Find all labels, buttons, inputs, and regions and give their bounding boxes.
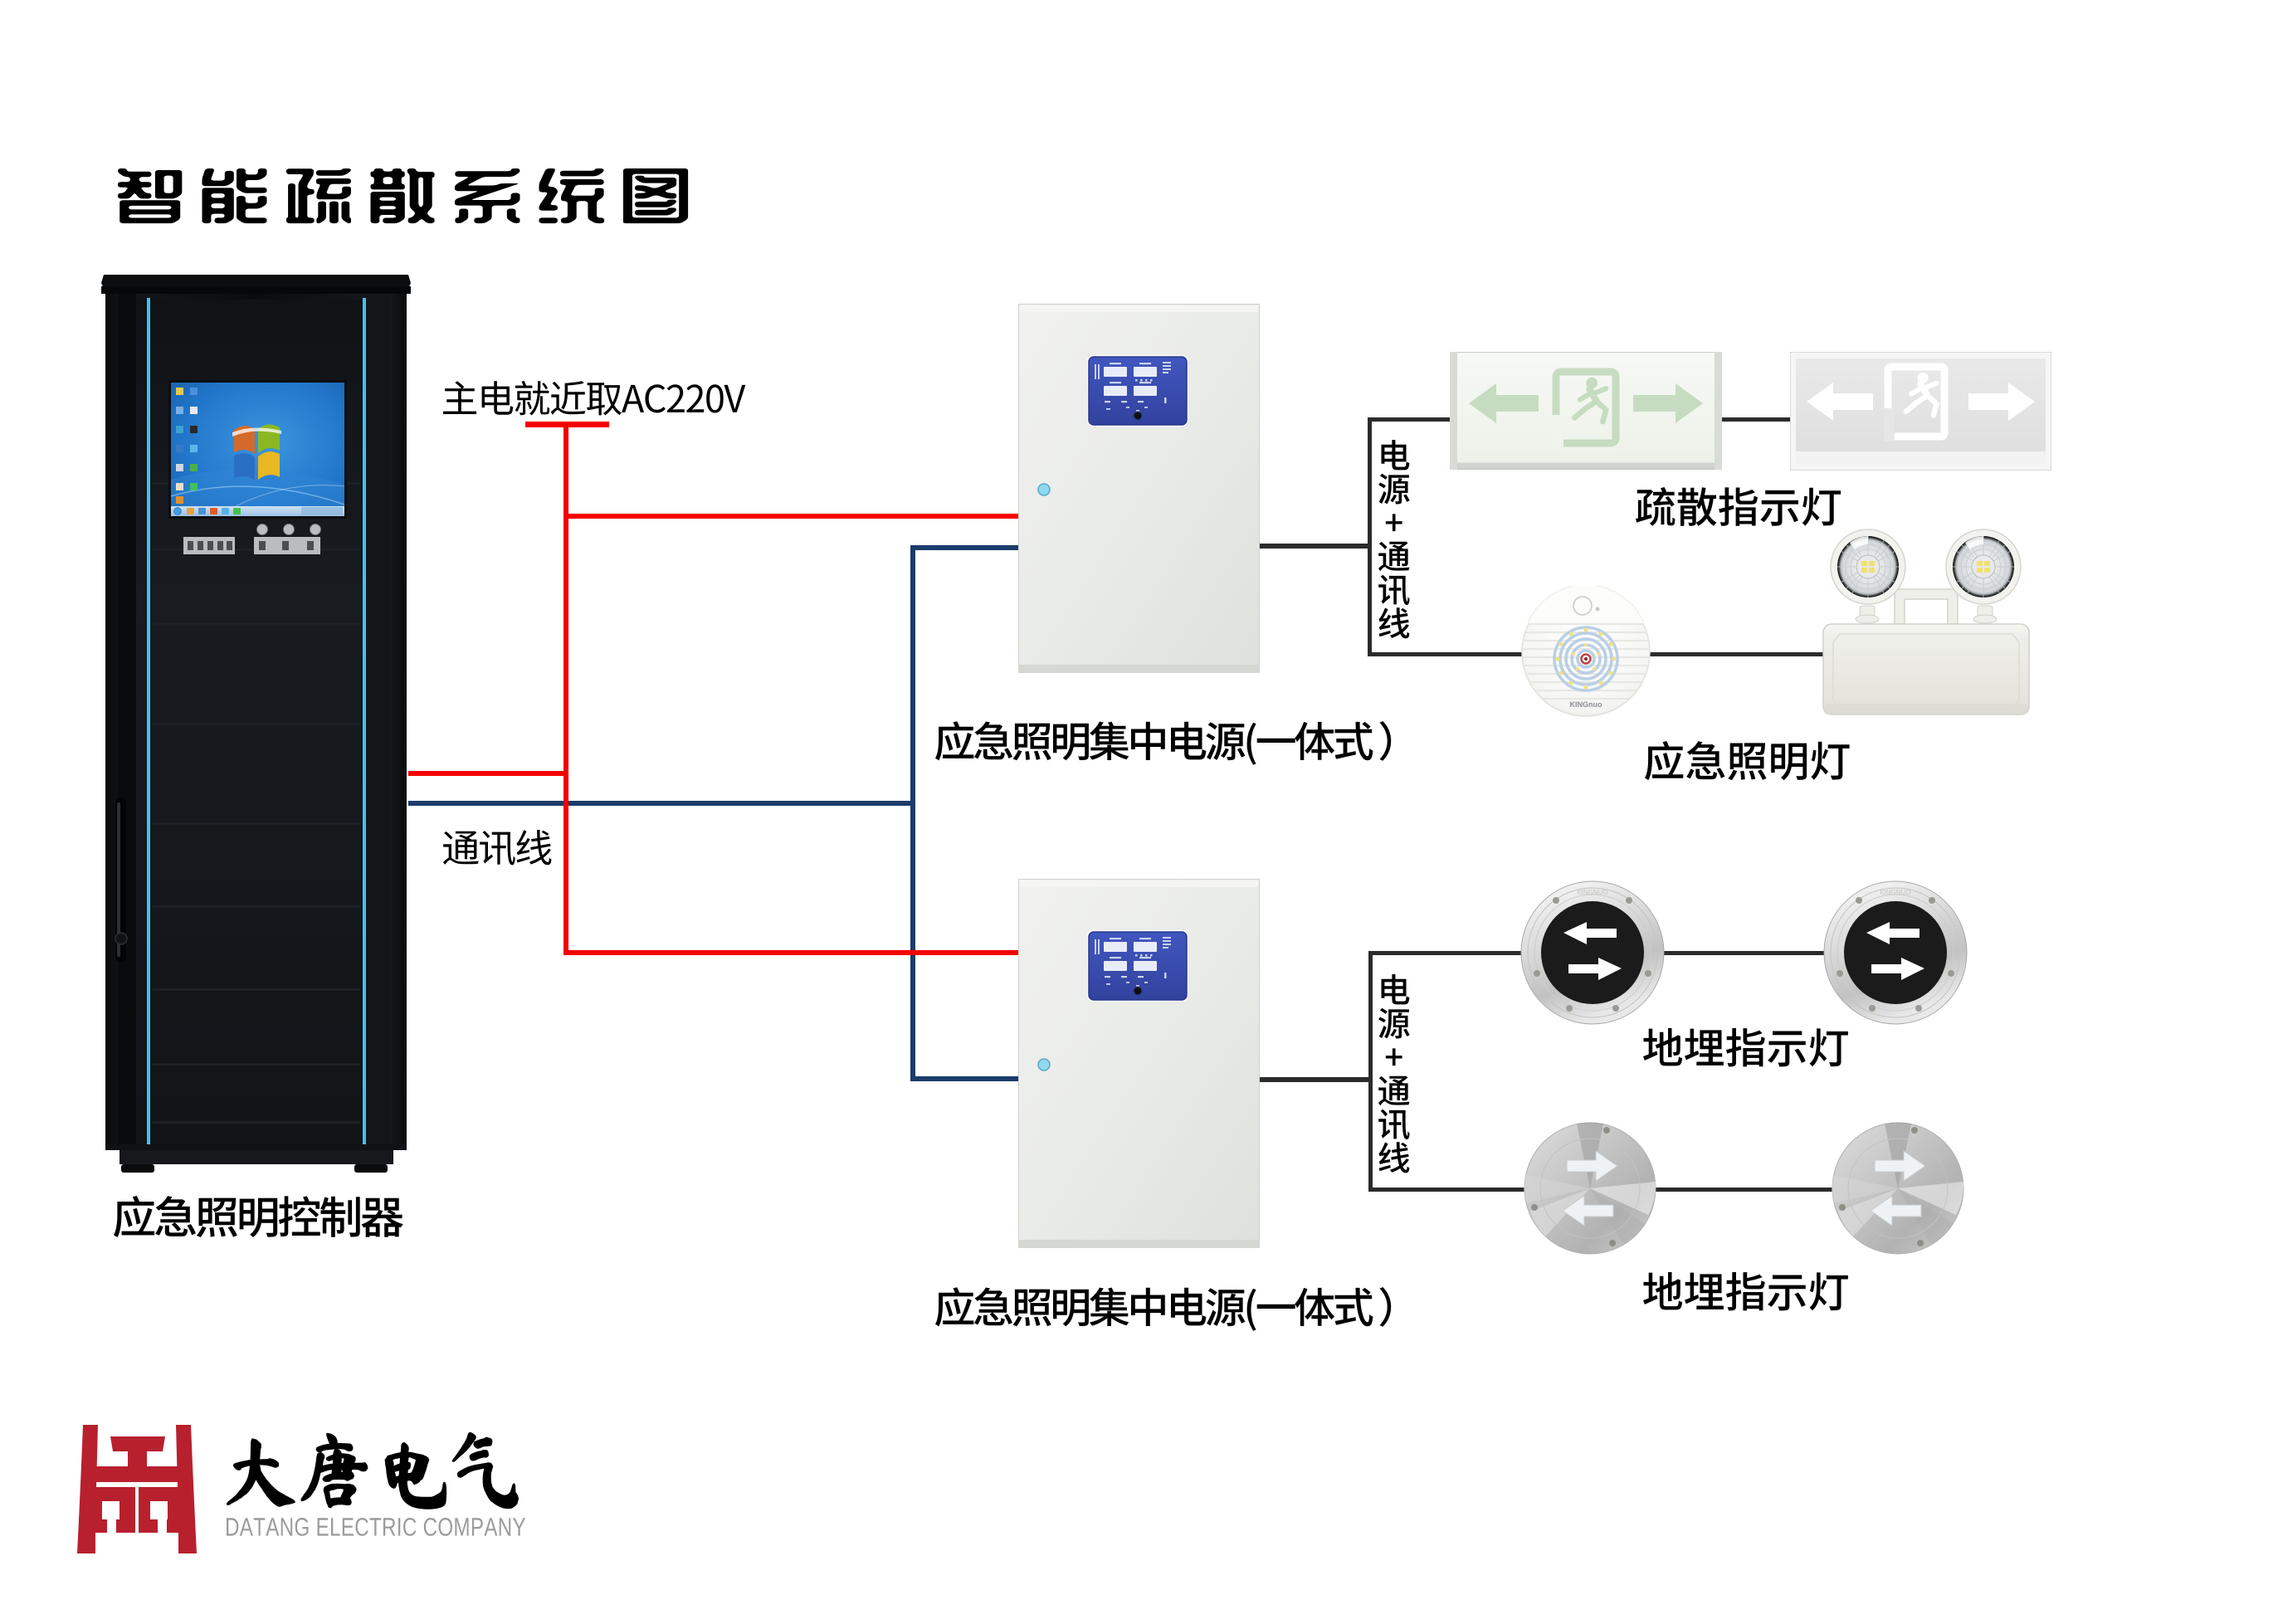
svg-text:KINGnuo: KINGnuo [1570, 700, 1602, 709]
svg-text:KINGNUO: KINGNUO [1577, 889, 1607, 896]
svg-text:KINGNUO: KINGNUO [1880, 889, 1910, 896]
